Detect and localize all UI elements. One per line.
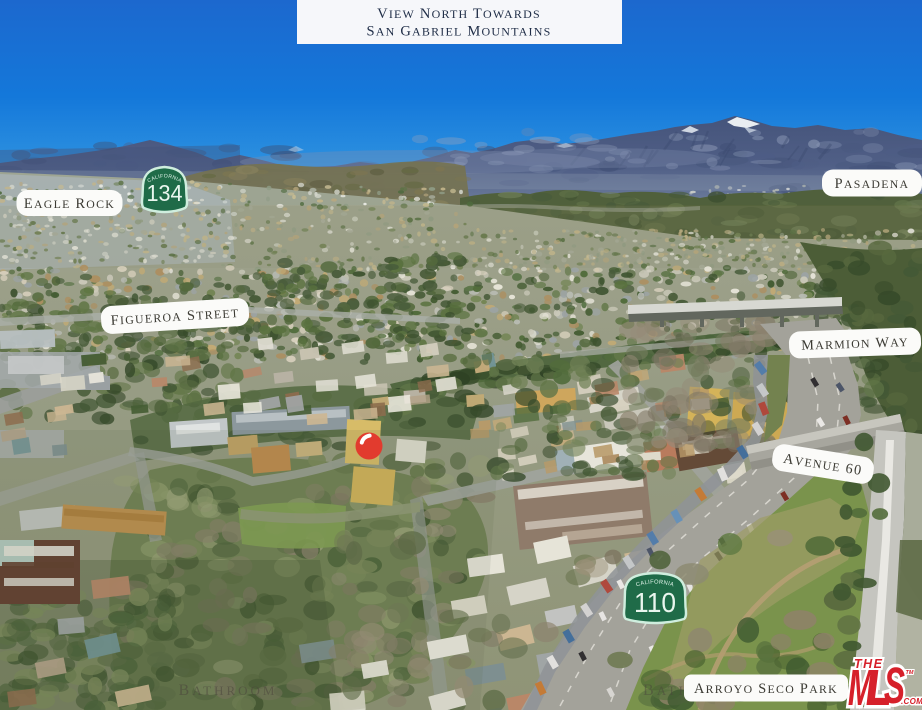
svg-text:EAGLE ROCK: EAGLE ROCK [24,196,115,212]
svg-text:SAN GABRIEL MOUNTAINS: SAN GABRIEL MOUNTAINS [367,24,552,40]
svg-text:ARROYO SECO PARK: ARROYO SECO PARK [694,681,838,697]
svg-text:VIEW NORTH TOWARDS: VIEW NORTH TOWARDS [377,6,541,22]
svg-text:BATH: BATH [643,682,691,699]
svg-text:BATHROOM: BATHROOM [179,682,278,699]
svg-text:110: 110 [634,586,676,618]
svg-text:.COM: .COM [901,697,922,706]
svg-text:THE: THE [854,657,884,671]
svg-text:134: 134 [146,180,182,206]
svg-text:TM: TM [906,670,914,676]
svg-text:PASADENA: PASADENA [835,176,910,192]
